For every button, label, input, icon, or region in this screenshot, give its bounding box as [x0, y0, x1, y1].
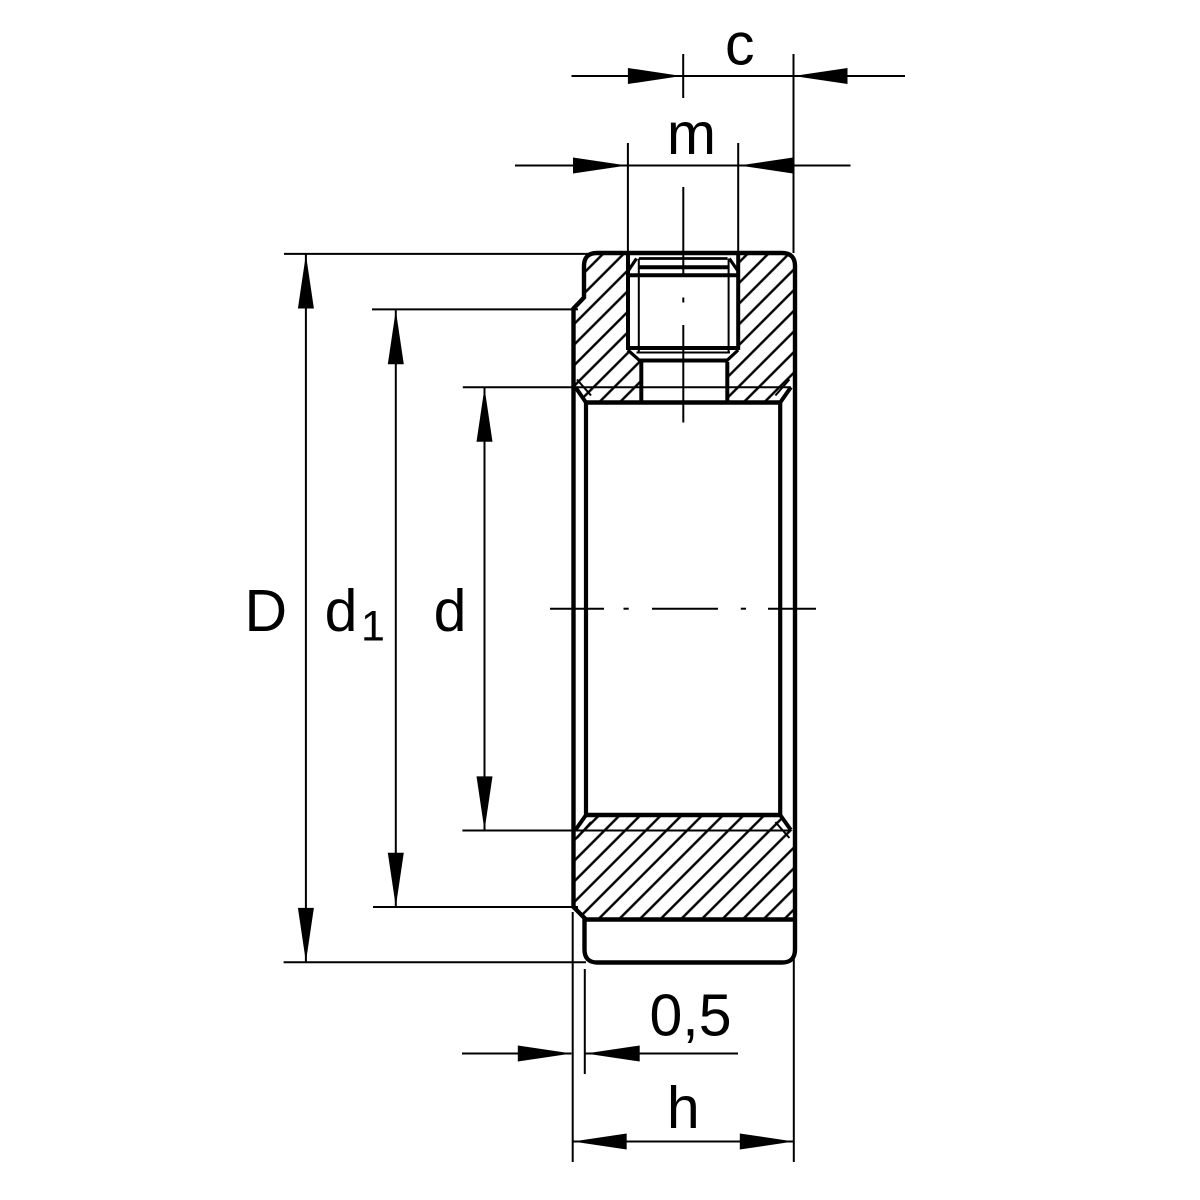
- svg-text:m: m: [667, 101, 716, 167]
- svg-text:1: 1: [361, 603, 385, 651]
- svg-text:D: D: [244, 578, 287, 644]
- svg-text:c: c: [725, 12, 755, 78]
- svg-text:d: d: [325, 578, 358, 644]
- svg-text:h: h: [667, 1075, 700, 1141]
- svg-text:0,5: 0,5: [649, 983, 731, 1049]
- svg-text:d: d: [434, 578, 467, 644]
